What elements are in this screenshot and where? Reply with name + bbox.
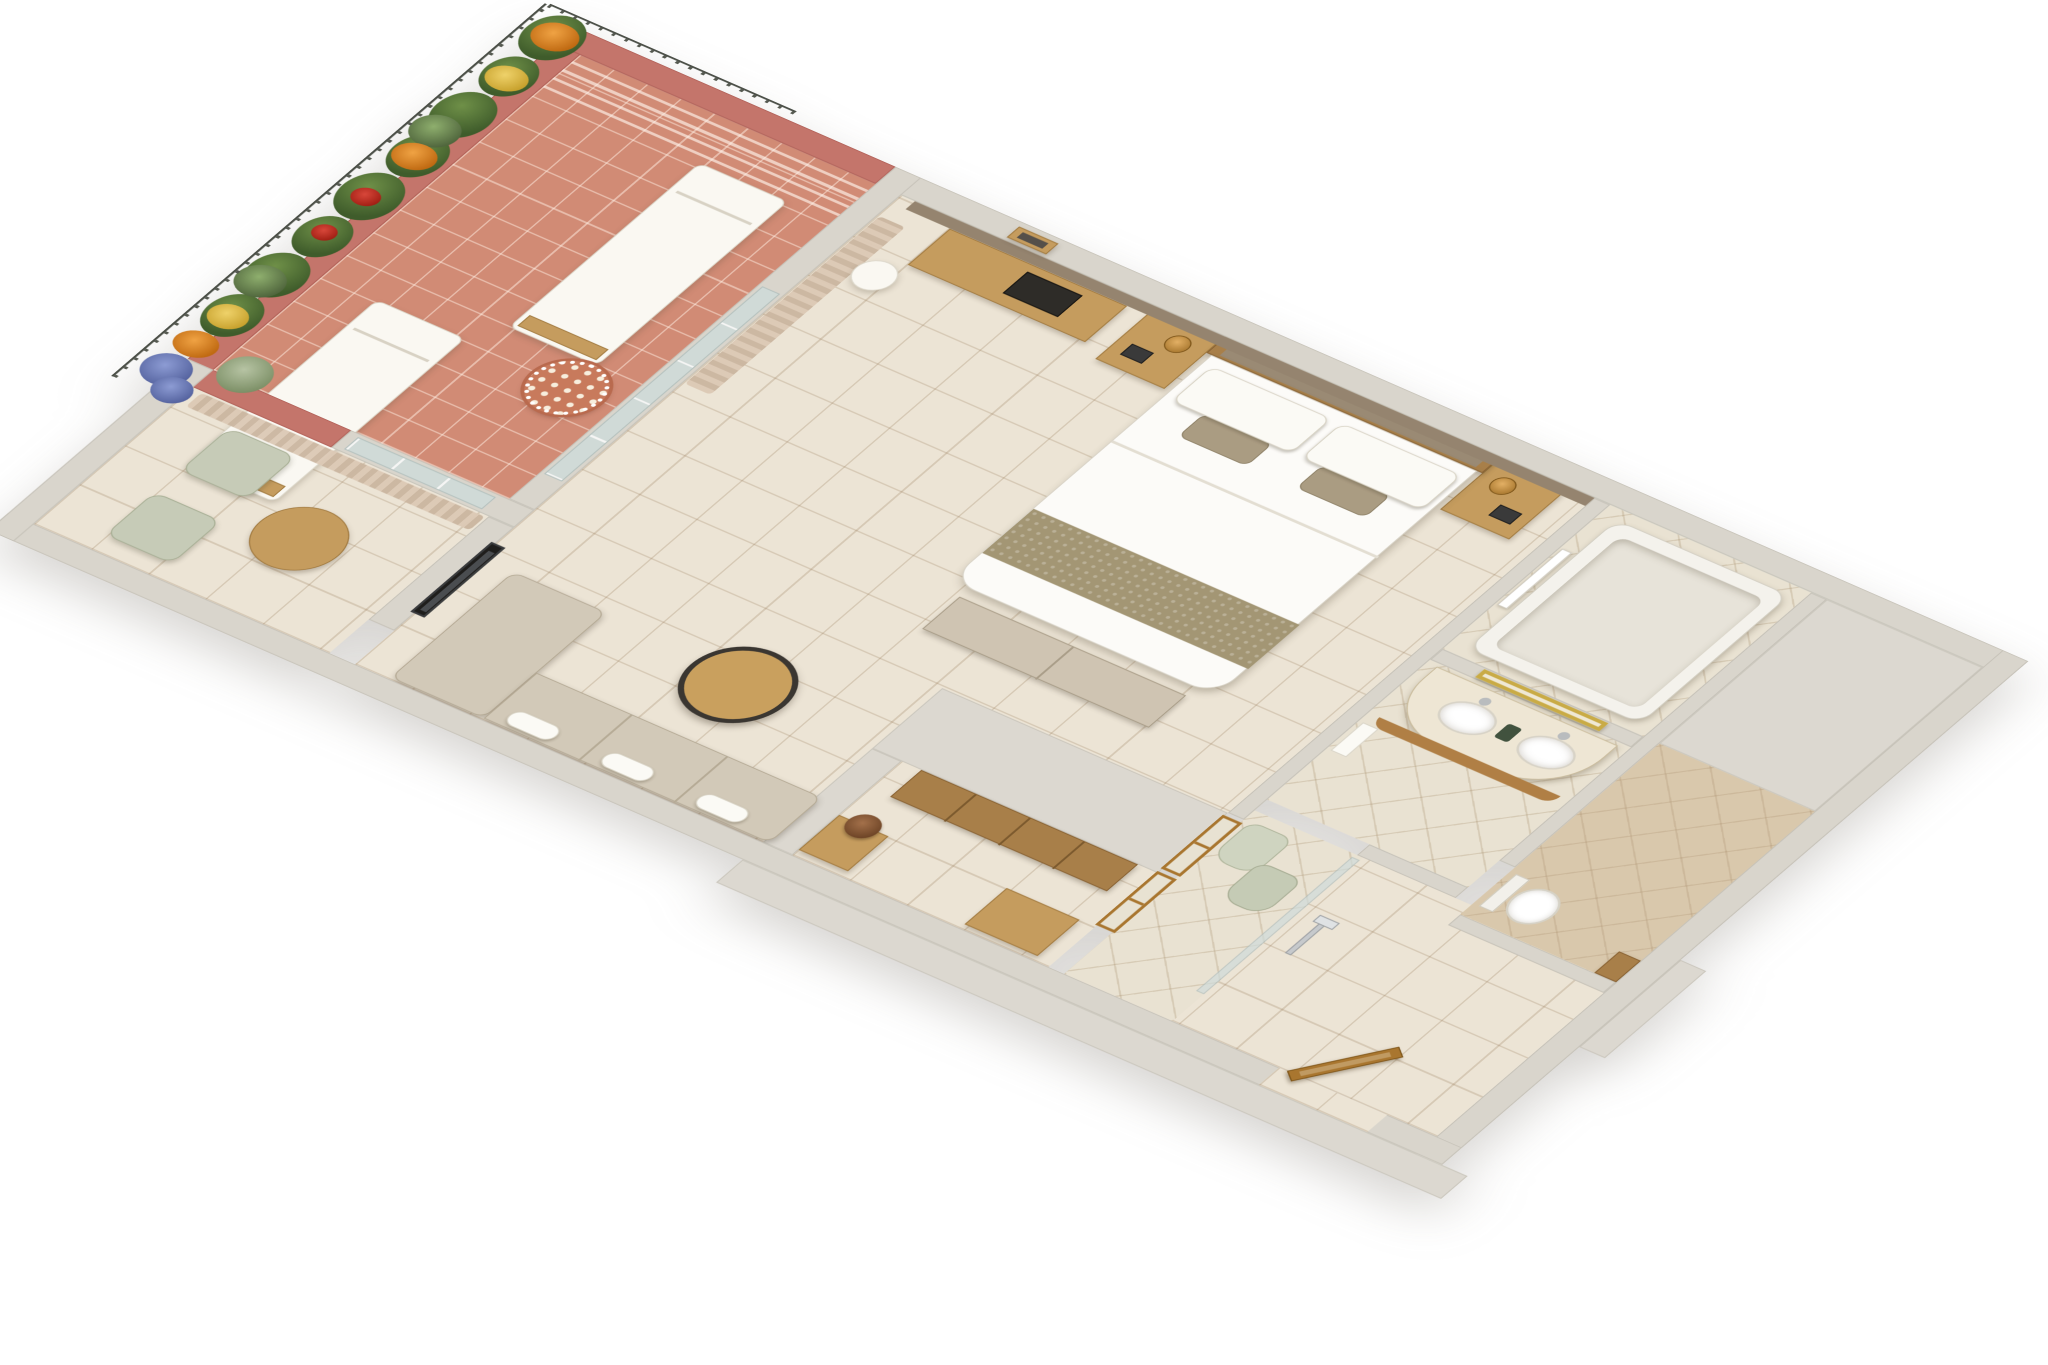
telephone [1488,504,1522,524]
table-lamp [1158,332,1197,356]
apartment-plan [0,55,2048,1279]
telephone [1120,344,1154,364]
vanity-sink [1506,729,1587,777]
floorplan-render [0,0,2048,1365]
table-lamp [1483,474,1522,498]
toiletries [1493,723,1522,742]
